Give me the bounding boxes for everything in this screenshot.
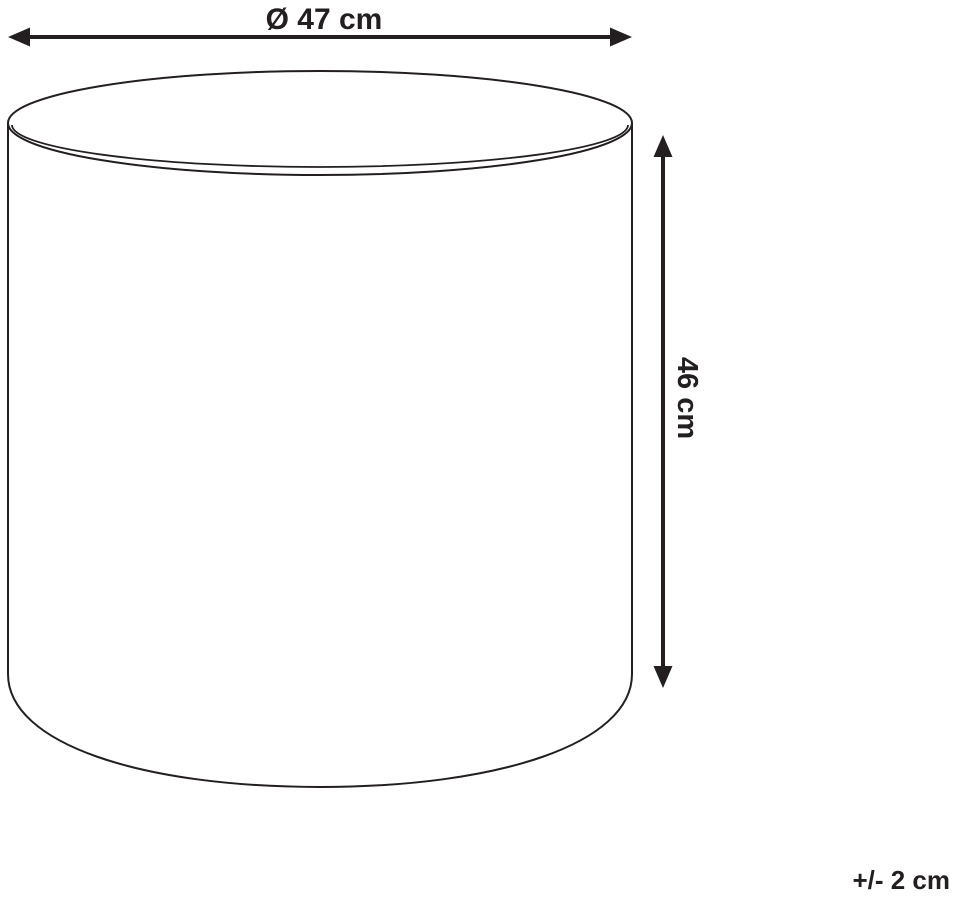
height-dimension-label: 46 cm (671, 357, 703, 439)
diagram-svg: Ø 47 cm 46 cm +/- 2 cm (0, 0, 960, 899)
pouf-top-ellipse (8, 71, 632, 175)
width-dimension: Ø 47 cm (8, 3, 632, 47)
pouf-drawing (8, 71, 632, 787)
height-dimension: 46 cm (654, 135, 704, 688)
tolerance-label: +/- 2 cm (852, 865, 950, 895)
pouf-body-outline (8, 123, 632, 787)
width-dimension-label: Ø 47 cm (266, 3, 383, 36)
height-arrowhead-top-icon (654, 135, 673, 157)
width-arrowhead-left-icon (8, 28, 30, 47)
height-arrowhead-bottom-icon (654, 666, 673, 688)
dimension-diagram: Ø 47 cm 46 cm +/- 2 cm (0, 0, 960, 899)
width-arrowhead-right-icon (610, 28, 632, 47)
